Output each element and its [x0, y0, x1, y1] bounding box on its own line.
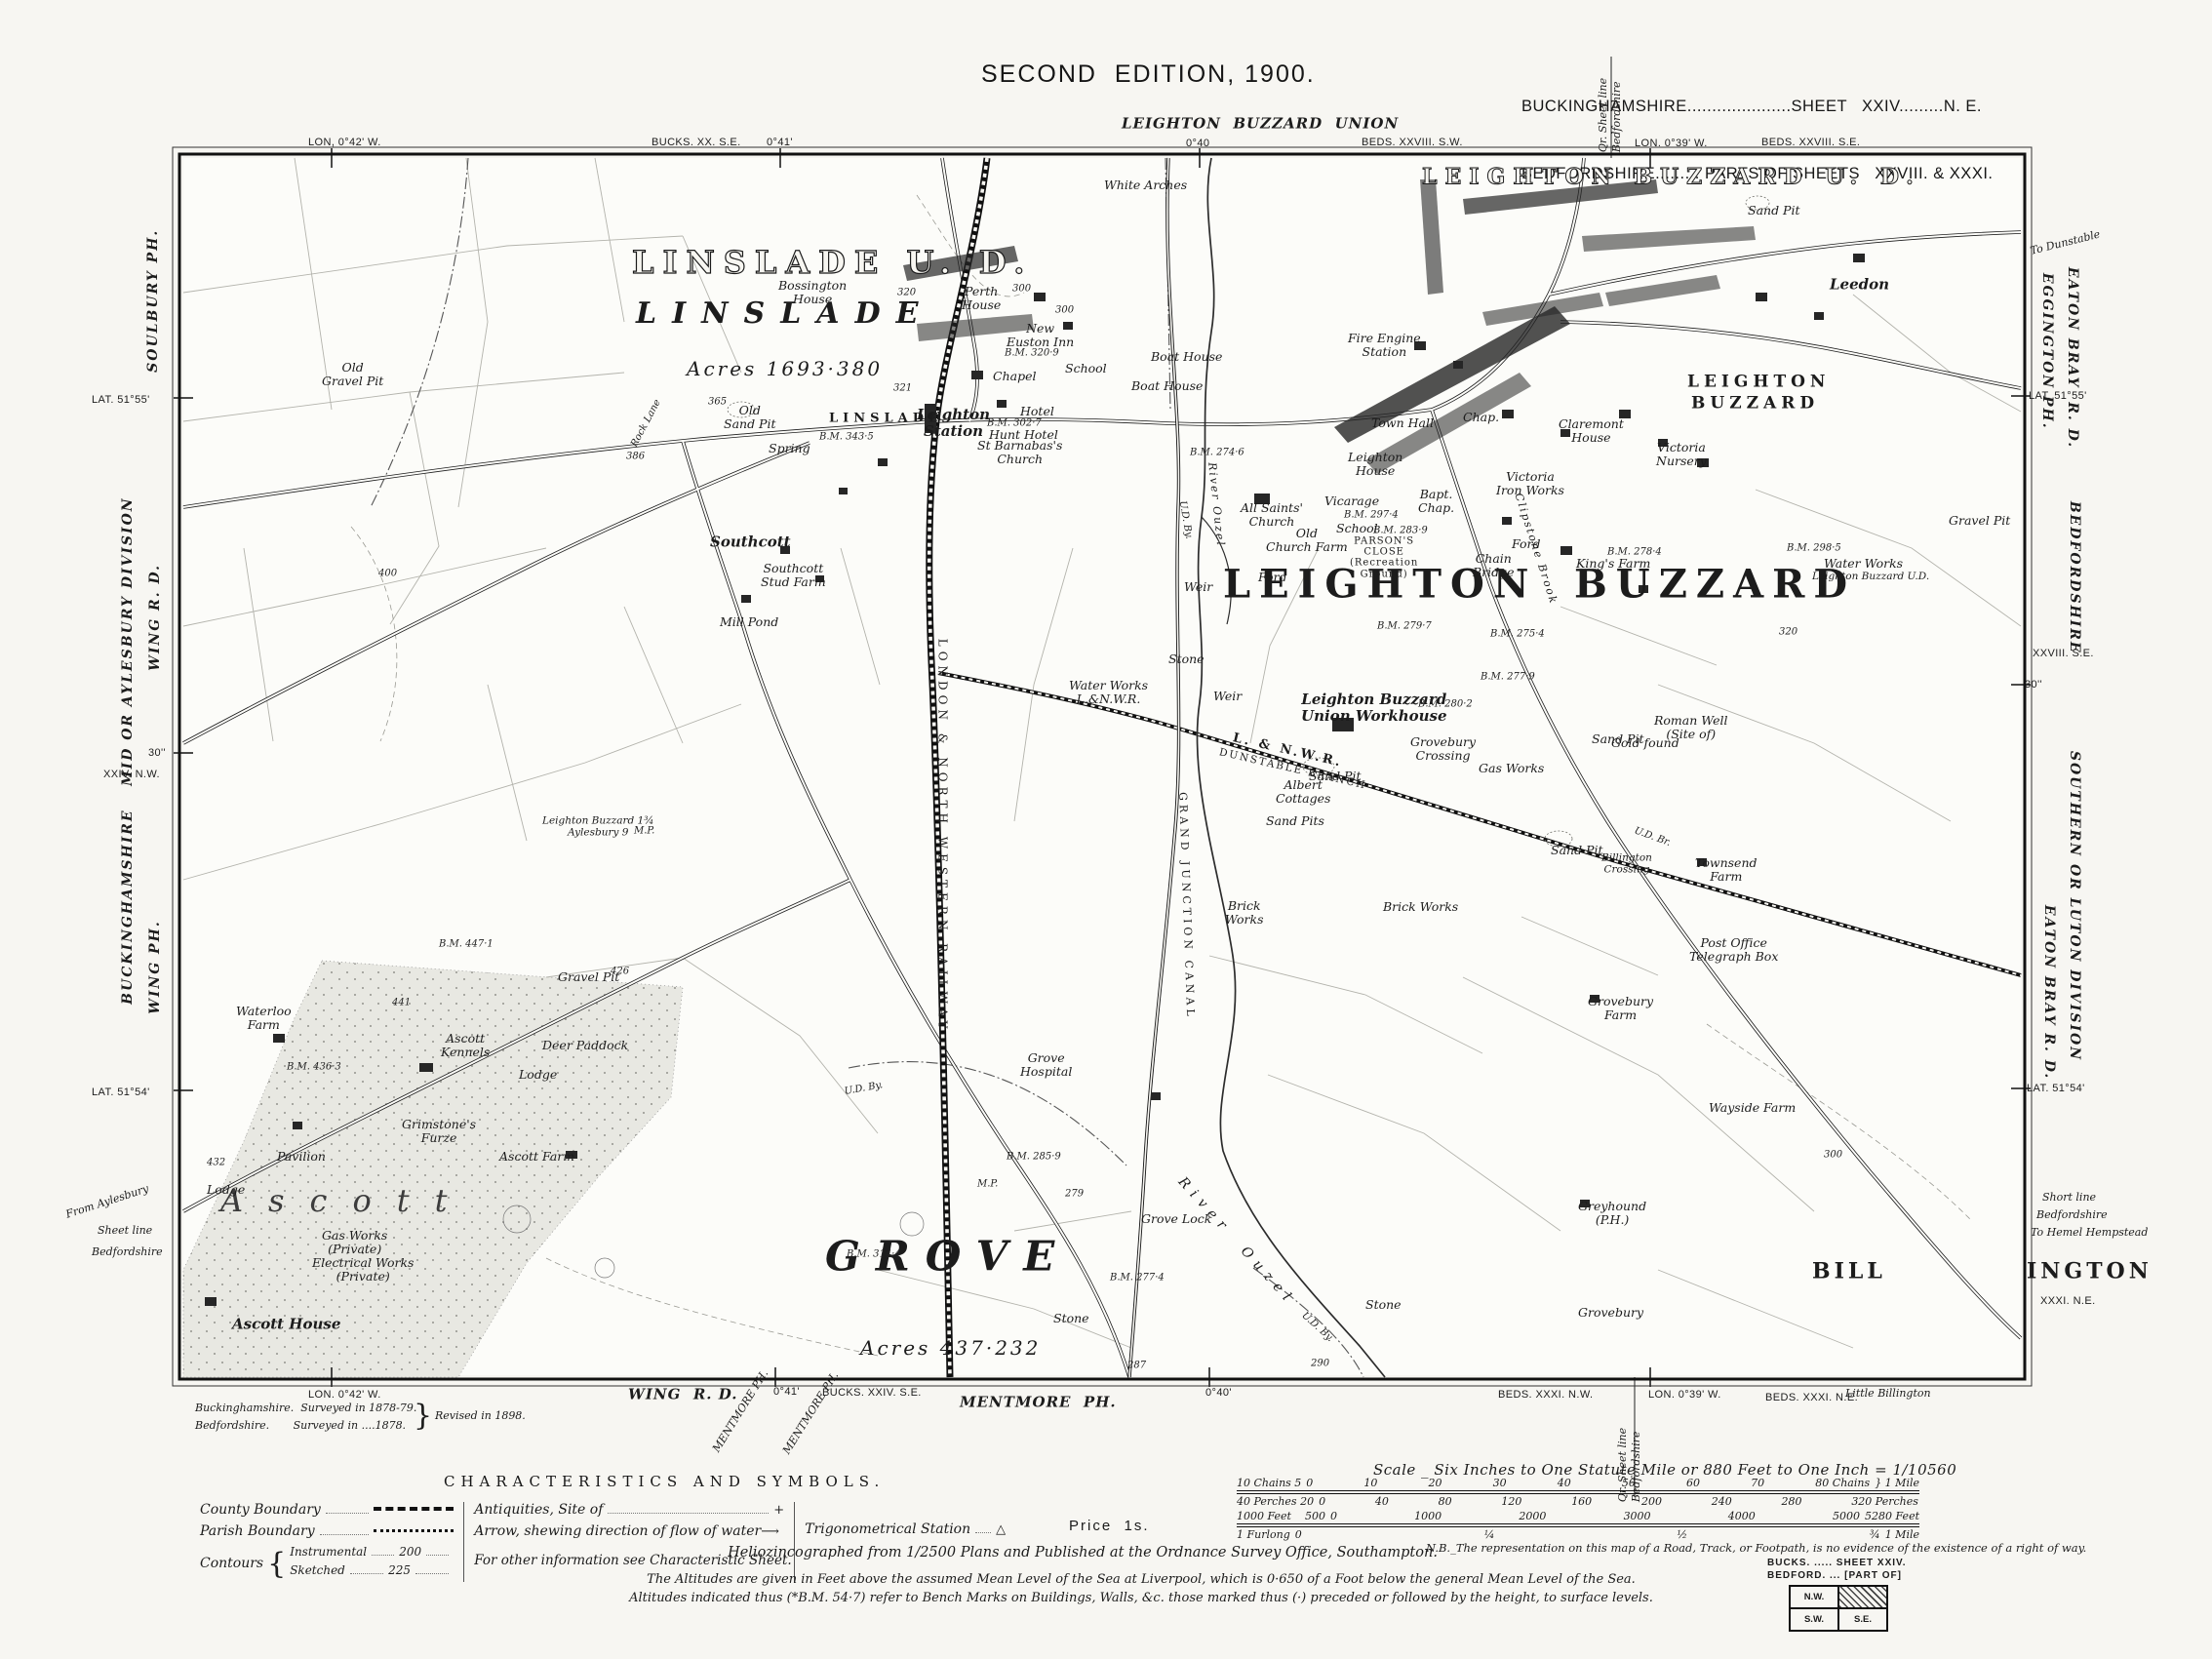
- map-label: Weir: [1184, 580, 1212, 594]
- legend-title: CHARACTERISTICS AND SYMBOLS.: [444, 1473, 970, 1490]
- map-label: Southcott: [710, 534, 791, 551]
- feet-furlong-scalebar: 1000 Feet 500 010002000300040005000 5280…: [1237, 1510, 1919, 1541]
- legend-divider: [463, 1502, 464, 1582]
- map-label: Leighton Buzzard U.D.: [1812, 572, 1929, 583]
- scalebar-rule: [1237, 1490, 1919, 1494]
- map-label: OldGravel Pit: [322, 361, 383, 388]
- map-label: B.M. 343·5: [819, 431, 874, 442]
- imprint-publisher: Heliozincographed from 1/2500 Plans and …: [624, 1545, 1541, 1560]
- map-label: Town Hall: [1371, 416, 1434, 430]
- map-label: B.M. 320·9: [1005, 347, 1059, 358]
- chains-ticks: 01020304050607080 Chains: [1305, 1477, 1871, 1489]
- map-label: INGTON: [2027, 1260, 2153, 1284]
- scale-tick: 1000: [1413, 1510, 1442, 1522]
- map-label: 386: [626, 451, 645, 461]
- map-label: OldSand Pit: [724, 404, 775, 431]
- map-label: B.M. 279·7: [1377, 620, 1432, 631]
- edition-title: SECOND EDITION, 1900.: [981, 60, 1316, 89]
- map-label: Deer Paddock: [542, 1039, 628, 1052]
- map-label: Bapt.Chap.: [1418, 488, 1454, 515]
- scale-tick: 4000: [1727, 1510, 1757, 1522]
- map-label: Stone: [1168, 652, 1205, 666]
- map-label: BUCKINGHAMSHIRE: [121, 809, 137, 1004]
- map-label: WaterlooFarm: [236, 1005, 292, 1032]
- map-label: B.M. 277·9: [1481, 671, 1535, 682]
- leader-line: [608, 1513, 769, 1514]
- map-label: 400: [378, 568, 397, 578]
- map-label: Ascott Farm: [499, 1150, 574, 1164]
- furlong-mile-label: 1 Mile: [1885, 1528, 1919, 1541]
- map-label: Sheet line: [98, 1225, 152, 1237]
- map-label: BrickWorks: [1225, 899, 1264, 927]
- map-label: Leedon: [1830, 277, 1889, 294]
- map-label: LEIGHTON: [1687, 373, 1830, 391]
- map-label: BillingtonCrossing: [1601, 852, 1652, 876]
- index-bucks-line: BUCKS. ..... SHEET XXIV.: [1767, 1557, 1907, 1569]
- scale-tick: 320 Perches: [1850, 1495, 1919, 1508]
- map-label: Ascott: [220, 1184, 472, 1219]
- map-label: GroveburyCrossing: [1410, 735, 1476, 763]
- scale-tick: ¾: [1869, 1528, 1881, 1541]
- map-label: Bedfordshire: [2036, 1209, 2108, 1221]
- map-label: Wayside Farm: [1709, 1101, 1796, 1115]
- map-label: PerthHouse: [962, 285, 1001, 312]
- map-label: Grimstone'sFurze: [402, 1118, 476, 1145]
- map-label: WING PH.: [148, 920, 164, 1014]
- map-label: BILL: [1812, 1260, 1886, 1284]
- map-label: GroveburyFarm: [1588, 995, 1653, 1022]
- map-label: 0°41': [773, 1386, 800, 1398]
- map-label: 287: [1127, 1360, 1146, 1370]
- scale-tick: 0: [1329, 1510, 1338, 1522]
- furlong-left-label: 1 Furlong: [1237, 1528, 1290, 1541]
- map-label: B.M. 314·4: [847, 1248, 901, 1259]
- price-label: Price 1s.: [1069, 1518, 1150, 1534]
- map-label: Boat House: [1151, 350, 1222, 364]
- map-label: Post OfficeTelegraph Box: [1689, 936, 1778, 964]
- map-label: SOULBURY PH.: [146, 229, 162, 373]
- map-label: BUCKS. XXIV. S.E.: [822, 1387, 922, 1399]
- map-label: Greyhound(P.H.): [1578, 1200, 1646, 1227]
- map-label: LEIGHTON BUZZARD U. D.: [1422, 166, 1921, 190]
- legend-trig-station-label: Trigonometrical Station: [805, 1521, 970, 1537]
- map-label: B.M. 277·4: [1110, 1272, 1165, 1283]
- legend-parish-boundary-label: Parish Boundary: [200, 1523, 315, 1539]
- parish-boundary-symbol: [374, 1529, 454, 1532]
- map-label: Mill Pond: [720, 615, 778, 629]
- map-label: Ford: [1258, 571, 1287, 584]
- scale-tick: 0: [1305, 1477, 1314, 1489]
- scale-tick: 80 Chains: [1814, 1477, 1871, 1489]
- chains-perches-scalebar: 10 Chains 5 01020304050607080 Chains } 1…: [1237, 1477, 1919, 1508]
- map-label: Bedfordshire: [1611, 82, 1623, 153]
- map-label: ClaremontHouse: [1559, 417, 1624, 445]
- map-label: Short line: [2042, 1192, 2096, 1204]
- map-label: XXXI. N.E.: [2040, 1295, 2096, 1307]
- map-label: Pavilion: [277, 1150, 326, 1164]
- map-label: Fire EngineStation: [1348, 332, 1421, 359]
- map-label: GroveHospital: [1020, 1051, 1072, 1079]
- legend-sketched-label: Sketched: [290, 1563, 345, 1577]
- map-label: 441: [392, 997, 411, 1007]
- scale-tick: 50: [1621, 1477, 1637, 1489]
- map-label: M.P.: [977, 1178, 998, 1189]
- legend-contours-label: Contours: [200, 1556, 263, 1571]
- map-label: PARSON'SCLOSE(RecreationGround): [1350, 536, 1418, 580]
- index-se-cell: S.E.: [1838, 1608, 1887, 1631]
- os-map-sheet: SECOND EDITION, 1900. BUCKINGHAMSHIRE...…: [0, 0, 2212, 1659]
- map-label: Gas Works: [1479, 762, 1544, 775]
- map-label: 321: [893, 382, 912, 393]
- map-label: Sand Pits: [1266, 814, 1324, 828]
- legend-county-boundary-label: County Boundary: [200, 1502, 321, 1518]
- legend-antiquities-label: Antiquities, Site of: [474, 1502, 603, 1518]
- map-label: LON, 0°42' W.: [308, 137, 381, 148]
- scale-tick: 10: [1363, 1477, 1378, 1489]
- scale-tick: 40: [1557, 1477, 1572, 1489]
- map-label: TownsendFarm: [1695, 856, 1758, 884]
- map-label: EATON BRAY R. D.: [2040, 905, 2056, 1080]
- map-label: Grove Lock: [1141, 1212, 1211, 1226]
- map-label: Qr. Sheet line: [1598, 78, 1609, 152]
- legend-instrumental-label: Instrumental: [290, 1545, 367, 1559]
- chains-left-label: 10 Chains 5: [1237, 1477, 1301, 1489]
- map-label: Revised in 1898.: [435, 1410, 526, 1422]
- legend-sketched-value: 225: [388, 1563, 411, 1577]
- map-label: BEDS. XXXI. N.E.: [1765, 1392, 1858, 1403]
- legend: CHARACTERISTICS AND SYMBOLS. County Boun…: [200, 1473, 970, 1582]
- legend-flow-arrow-label: Arrow, shewing direction of flow of wate…: [474, 1523, 761, 1539]
- map-label: Vicarage: [1324, 494, 1379, 508]
- map-label: Gold found: [1611, 736, 1679, 750]
- imprint-altitude-note-1: The Altitudes are given in Feet above th…: [458, 1572, 1824, 1587]
- map-label: Lodge: [519, 1068, 557, 1082]
- map-label: LEIGHTON BUZZARD UNION: [1122, 116, 1399, 133]
- map-label: B.M. 275·4: [1490, 628, 1545, 639]
- map-label: Chapel: [993, 370, 1036, 383]
- feet-ticks: 010002000300040005000: [1329, 1510, 1861, 1522]
- map-label: ChainBridge: [1473, 552, 1515, 579]
- leader-line: [350, 1573, 383, 1574]
- scale-tick: 20: [1428, 1477, 1443, 1489]
- map-label: 0°40: [1186, 138, 1209, 149]
- map-label: Water Works: [1824, 557, 1903, 571]
- scale-tick: 2000: [1518, 1510, 1547, 1522]
- map-label: MID OR AYLESBURY DIVISION: [121, 496, 137, 785]
- scale-tick: 5000: [1832, 1510, 1861, 1522]
- map-label: Electrical Works(Private): [312, 1256, 414, 1284]
- leader-line: [415, 1573, 449, 1574]
- scale-tick: 280: [1781, 1495, 1803, 1508]
- map-label: LON. 0°42' W.: [308, 1389, 381, 1401]
- map-label: Chap.: [1463, 411, 1499, 424]
- scale-tick: 70: [1750, 1477, 1765, 1489]
- map-label: Acres 437·232: [860, 1337, 1041, 1359]
- map-label: Sand Pit: [1748, 204, 1799, 217]
- map-label: LON. 0°39' W.: [1648, 1389, 1721, 1401]
- map-label: School: [1065, 362, 1107, 375]
- map-label: BEDFORDSHIRE: [2066, 501, 2081, 654]
- map-label: 290: [1311, 1358, 1329, 1368]
- map-label: BUCKS. XX. S.E.: [652, 137, 741, 148]
- scale-tick: 30: [1492, 1477, 1508, 1489]
- map-label: Ascott House: [232, 1317, 340, 1333]
- scale-tick: 120: [1500, 1495, 1522, 1508]
- map-label: AscottKennels: [441, 1032, 490, 1059]
- scale-tick: 60: [1685, 1477, 1701, 1489]
- map-label: EATON BRAY R. D.: [2064, 267, 2079, 449]
- map-label: Bedfordshire: [92, 1246, 163, 1258]
- map-label: Sand Pit: [1551, 844, 1602, 857]
- map-label: B.M. 280·2: [1418, 698, 1473, 709]
- map-label: Hotel: [1020, 405, 1054, 418]
- map-label: 30'': [148, 747, 166, 759]
- map-label: Sand Pit: [1309, 770, 1361, 783]
- scale-tick: 240: [1711, 1495, 1733, 1508]
- scale-tick: 200: [1640, 1495, 1663, 1508]
- map-label: B.M. 278·4: [1607, 546, 1662, 557]
- furlong-ticks: 0¼½¾: [1294, 1528, 1881, 1541]
- map-label: WING R. D.: [148, 564, 164, 671]
- map-label: VictoriaNursery: [1656, 441, 1707, 468]
- trig-station-symbol: △: [996, 1522, 1006, 1537]
- map-label: B.M. 298·5: [1787, 542, 1841, 553]
- map-label: King's Farm: [1576, 557, 1650, 571]
- leader-line: [320, 1534, 370, 1535]
- map-label: White Arches: [1104, 178, 1187, 192]
- flow-arrow-symbol: ⟶: [761, 1524, 779, 1539]
- map-label: Brick Works: [1383, 900, 1458, 914]
- map-label: All Saints'Church: [1241, 501, 1303, 529]
- map-label: VictoriaIron Works: [1496, 470, 1564, 497]
- map-label: EGGINGTON PH.: [2038, 273, 2054, 430]
- feet-right-label: 5280 Feet: [1865, 1510, 1919, 1522]
- map-label: BEDS. XXXI. N.W.: [1498, 1389, 1593, 1401]
- map-label: 300: [1824, 1149, 1842, 1160]
- map-label: BEDS. XXVIII. S.E.: [1761, 137, 1860, 148]
- map-label: LON. 0°39' W.: [1635, 138, 1708, 149]
- map-label: 300: [1055, 304, 1074, 315]
- map-label: NewEuston Inn: [1007, 322, 1074, 349]
- index-sw-cell: S.W.: [1790, 1608, 1838, 1631]
- scale-tick: 0: [1294, 1528, 1303, 1541]
- scalebar-rule: [1237, 1523, 1919, 1527]
- map-label: BEDS. XXVIII. S.W.: [1362, 137, 1463, 148]
- map-label: B.M. 285·9: [1007, 1151, 1061, 1162]
- sheet-ref-bucks: BUCKINGHAMSHIRE.....................SHEE…: [1521, 96, 1994, 118]
- map-label: M.P.: [634, 825, 654, 836]
- map-label: SouthcottStud Farm: [761, 562, 826, 589]
- map-label: LINSLADE U. D.: [632, 246, 1033, 281]
- imprint-altitude-note-2: Altitudes indicated thus (*B.M. 54·7) re…: [458, 1591, 1824, 1605]
- map-label: Stone: [1053, 1312, 1089, 1325]
- map-label: BossingtonHouse: [778, 279, 847, 306]
- map-label: LeightonStation: [917, 407, 990, 440]
- map-label: Gas Works(Private): [322, 1229, 387, 1256]
- contours-brace: {: [267, 1547, 286, 1581]
- map-label: 432: [207, 1157, 225, 1167]
- map-label: School: [1336, 522, 1378, 535]
- map-label: Grovebury: [1578, 1306, 1643, 1320]
- map-label: Little Billington: [1845, 1388, 1931, 1400]
- legend-divider: [794, 1502, 795, 1582]
- map-label: SOUTHERN OR LUTON DIVISION: [2066, 751, 2081, 1061]
- map-label: Acres 1693·380: [687, 358, 883, 379]
- map-label: Stone: [1365, 1298, 1402, 1312]
- county-boundary-symbol: [374, 1507, 454, 1511]
- map-label: WING R. D.: [628, 1387, 737, 1403]
- map-label: 0°40': [1205, 1387, 1232, 1399]
- map-label: BUZZARD: [1691, 394, 1819, 413]
- map-label: LONDON & NORTH WESTERN RAILWAY: [935, 639, 948, 1034]
- map-label: Weir: [1213, 690, 1242, 703]
- map-label: XXIV. N.W.: [103, 769, 160, 780]
- map-label: 279: [1065, 1188, 1084, 1199]
- map-label: LAT. 51°55': [2029, 390, 2087, 402]
- map-label: 320: [897, 287, 916, 297]
- map-label: B.M. 297·4: [1344, 509, 1399, 520]
- antiquities-cross-symbol: +: [773, 1503, 784, 1518]
- map-label: Ford: [1512, 537, 1541, 551]
- scale-tick: 3000: [1623, 1510, 1652, 1522]
- map-label: 0°41': [767, 137, 793, 148]
- legend-instrumental-value: 200: [399, 1545, 421, 1559]
- map-label: 426: [611, 966, 629, 976]
- map-label: 300: [1012, 283, 1031, 294]
- feet-left-label: 1000 Feet 500: [1237, 1510, 1325, 1522]
- scale-tick: 40: [1374, 1495, 1390, 1508]
- map-label: B.M. 436·3: [287, 1061, 341, 1072]
- map-label: LAT. 51°54': [2027, 1083, 2085, 1094]
- map-label: Water WorksL.&N.W.R.: [1069, 679, 1148, 706]
- map-label: Buckinghamshire. Surveyed in 1878-79.: [195, 1402, 416, 1414]
- map-label: Bedfordshire. Surveyed in ....1878.: [195, 1420, 406, 1432]
- map-label: Boat House: [1131, 379, 1203, 393]
- leader-line: [975, 1532, 991, 1533]
- map-label: 30'': [2025, 679, 2042, 691]
- leader-line: [326, 1513, 369, 1514]
- scale-tick: 80: [1438, 1495, 1453, 1508]
- map-label: MENTMORE PH.: [960, 1395, 1117, 1411]
- leader-line: [372, 1555, 394, 1556]
- perches-left-label: 40 Perches 20: [1237, 1495, 1314, 1508]
- map-label: B.M. 274·6: [1190, 447, 1244, 457]
- map-label: 320: [1779, 626, 1797, 637]
- map-label: Gravel Pit: [1949, 514, 2010, 528]
- scale-tick: ¼: [1483, 1528, 1496, 1541]
- scale-tick: ½: [1676, 1528, 1688, 1541]
- leader-line: [426, 1555, 449, 1556]
- scale-tick: 0: [1318, 1495, 1326, 1508]
- map-label: To Hemel Hempstead: [2031, 1227, 2148, 1239]
- perches-ticks: 04080120160200240280320 Perches: [1318, 1495, 1919, 1508]
- index-ne-cell-highlighted: [1838, 1586, 1887, 1608]
- map-label: }: [414, 1400, 432, 1433]
- map-label: LAT. 51°55': [92, 394, 150, 406]
- map-label: Spring: [769, 442, 810, 455]
- scale-tick: 160: [1570, 1495, 1593, 1508]
- map-label: B.M. 447·1: [439, 938, 494, 949]
- map-label: Lodge: [207, 1183, 245, 1197]
- map-label: LeightonHouse: [1348, 451, 1402, 478]
- map-label: XXVIII. S.E.: [2033, 648, 2094, 659]
- chains-mile-label: } 1 Mile: [1875, 1477, 1919, 1489]
- map-label: St Barnabas'sChurch: [977, 439, 1062, 466]
- map-label: B.M. 283·9: [1373, 525, 1428, 535]
- map-label: LAT. 51°54': [92, 1086, 150, 1098]
